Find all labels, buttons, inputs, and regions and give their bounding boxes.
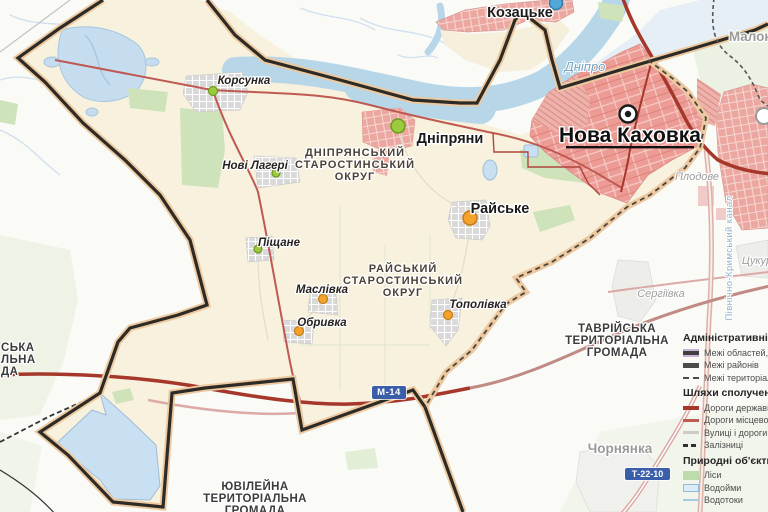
forest-swatch	[683, 471, 699, 480]
legend-title-roads: Шляхи сполучення:	[683, 387, 768, 399]
road-badge-m14: М-14	[372, 386, 406, 399]
svg-text:ТЕРИТОРІАЛЬНА: ТЕРИТОРІАЛЬНА	[565, 335, 669, 347]
hromada-border-swatch	[683, 377, 699, 379]
svg-text:ГРОМАДА: ГРОМАДА	[225, 505, 286, 512]
street-road-swatch	[683, 431, 699, 434]
map-legend: Адміністративні межі: Межі областей, АРК…	[683, 332, 768, 510]
label-tsukury-clipped: Цукур	[742, 255, 768, 267]
legend-item-label: Водойми	[704, 483, 741, 493]
svg-text:СТАРОСТИНСЬКИЙ: СТАРОСТИНСЬКИЙ	[343, 274, 463, 287]
label-serhiivka: Сергіївка	[637, 288, 685, 300]
svg-text:ОКРУГ: ОКРУГ	[383, 287, 424, 299]
waterbody-swatch	[683, 484, 699, 492]
road-badge-t22-10: Т-22-10	[625, 468, 670, 480]
label-malokakhovka-clipped: Малок	[729, 29, 768, 44]
label-nova-kakhovka: Нова Каховка	[559, 124, 701, 147]
map-image: Козацьке Нова Каховка Дніпряни Райське К…	[0, 0, 768, 512]
label-kozatske: Козацьке	[487, 5, 553, 21]
legend-title-admin-borders: Адміністративні межі:	[683, 332, 768, 344]
svg-text:ТАВРІЙСЬКА: ТАВРІЙСЬКА	[578, 322, 656, 335]
label-chornianka: Чорнянка	[588, 441, 653, 456]
label-canal: Північно-Кримський канал	[724, 195, 735, 320]
svg-text:ДНІПРЯНСЬКИЙ: ДНІПРЯНСЬКИЙ	[305, 146, 405, 159]
svg-text:СТАРОСТИНСЬКИЙ: СТАРОСТИНСЬКИЙ	[295, 158, 415, 171]
svg-text:ТЕРИТОРІАЛЬНА: ТЕРИТОРІАЛЬНА	[203, 493, 307, 505]
legend-item-label: Дороги місцевого значення	[704, 415, 768, 425]
svg-text:ОКРУГ: ОКРУГ	[335, 171, 376, 183]
label-novi-laheri: Нові Лагері	[222, 160, 288, 172]
svg-text:ДА: ДА	[1, 366, 18, 378]
legend-item-label: Межі територіальних громад	[704, 373, 768, 383]
marker-nova-kakhovka	[620, 106, 637, 123]
marker-dnipriany	[391, 119, 405, 133]
svg-text:ЮВІЛЕЙНА: ЮВІЛЕЙНА	[221, 480, 288, 493]
map-canvas[interactable]: Козацьке Нова Каховка Дніпряни Райське К…	[0, 0, 768, 512]
svg-text:ГРОМАДА: ГРОМАДА	[587, 347, 648, 359]
legend-item-label: Вулиці і дороги населених пунктів	[704, 428, 768, 438]
stream-swatch	[683, 499, 699, 501]
marker-korsunka	[209, 87, 218, 96]
marker-topolivka	[444, 311, 453, 320]
label-plodove: Плодове	[675, 171, 719, 183]
label-raiske: Райське	[471, 201, 530, 217]
local-road-swatch	[683, 419, 699, 422]
legend-item-label: Межі районів	[704, 360, 759, 370]
label-underline	[566, 146, 694, 148]
marker-tavriisk	[756, 108, 768, 124]
state-road-swatch	[683, 406, 699, 410]
label-dnipro-river: Дніпро	[563, 59, 606, 74]
label-maslivka: Маслівка	[296, 284, 349, 296]
legend-item-label: Дороги державного значення	[704, 403, 768, 413]
legend-title-natural: Природні об'єкти:	[683, 455, 768, 467]
legend-item-label: Залізниці	[704, 440, 743, 450]
railway-swatch	[683, 444, 699, 447]
svg-text:СЬКА: СЬКА	[1, 342, 35, 354]
svg-text:РАЙСЬКИЙ: РАЙСЬКИЙ	[369, 262, 438, 275]
label-korsunka: Корсунка	[218, 75, 271, 87]
label-topolivka: Тополівка	[449, 299, 507, 311]
svg-text:ЛЬНА: ЛЬНА	[1, 354, 36, 366]
legend-item-label: Водотоки	[704, 495, 743, 505]
legend-item-label: Ліси	[704, 470, 721, 480]
label-pishchane: Піщане	[258, 237, 301, 249]
oblast-border-swatch	[683, 349, 699, 357]
legend-item-label: Межі областей, АРК	[704, 348, 768, 358]
label-dnipriany: Дніпряни	[417, 131, 484, 147]
label-obryvka: Обривка	[297, 317, 347, 329]
raion-border-swatch	[683, 363, 699, 368]
